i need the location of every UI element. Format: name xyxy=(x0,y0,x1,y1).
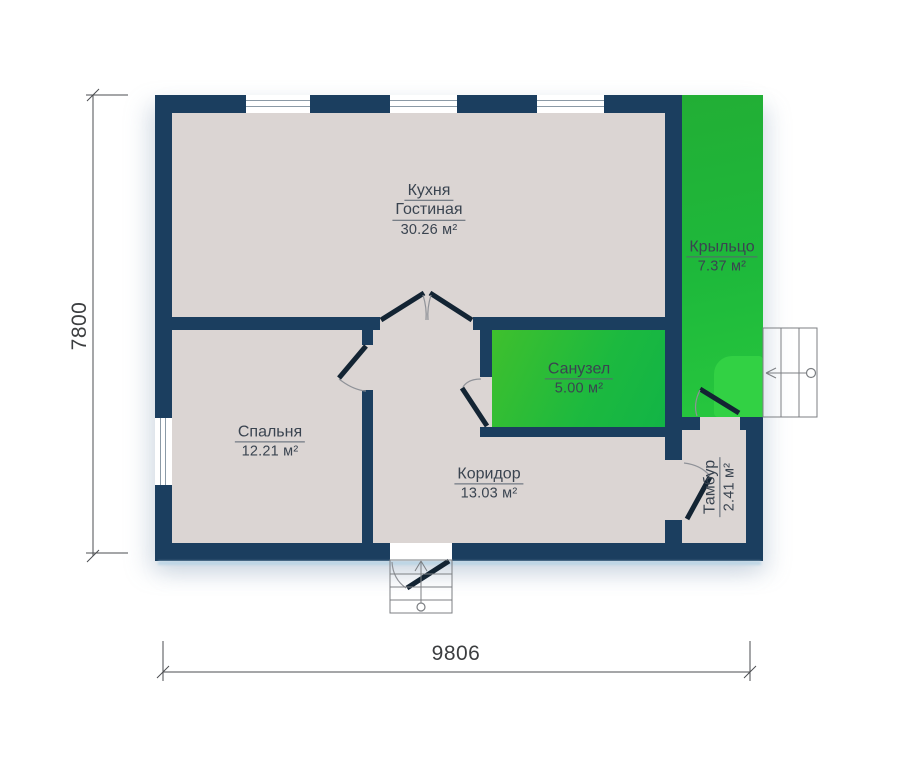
door-swing-porch xyxy=(696,389,739,416)
porch-stairs xyxy=(763,328,817,417)
room-area: 13.03 м² xyxy=(461,487,518,503)
room-label-porch: Крыльцо 7.37 м² xyxy=(686,238,757,275)
room-name: Коридор xyxy=(454,465,523,484)
room-label-vestibule: Тамбур 2.41 м² xyxy=(701,457,738,517)
room-name: Санузел xyxy=(545,360,613,379)
dimension-width-value: 9806 xyxy=(432,642,481,666)
room-label-kitchen: Кухня Гостиная 30.26 м² xyxy=(392,182,465,238)
floor-plan-canvas: Кухня Гостиная 30.26 м² Спальня 12.21 м²… xyxy=(0,0,905,768)
door-swing-bedroom xyxy=(339,346,366,391)
room-area: 7.37 м² xyxy=(698,260,746,276)
dimension-line-height xyxy=(86,89,128,562)
room-area: 2.41 м² xyxy=(723,463,739,511)
room-label-bathroom: Санузел 5.00 м² xyxy=(545,360,613,397)
door-swing-bathroom xyxy=(462,379,487,426)
room-name: Тамбур xyxy=(701,457,720,517)
room-name: Спальня xyxy=(235,423,305,442)
dimension-height-value: 7800 xyxy=(68,302,92,351)
room-name: Гостиная xyxy=(392,201,465,220)
room-label-corridor: Коридор 13.03 м² xyxy=(454,465,523,502)
room-area: 30.26 м² xyxy=(401,222,458,238)
room-name: Крыльцо xyxy=(686,238,757,257)
room-label-bedroom: Спальня 12.21 м² xyxy=(235,423,305,460)
door-swing-kitchen xyxy=(381,293,472,320)
room-name: Кухня xyxy=(405,182,454,201)
room-area: 5.00 м² xyxy=(555,382,603,398)
room-area: 12.21 м² xyxy=(242,445,299,461)
